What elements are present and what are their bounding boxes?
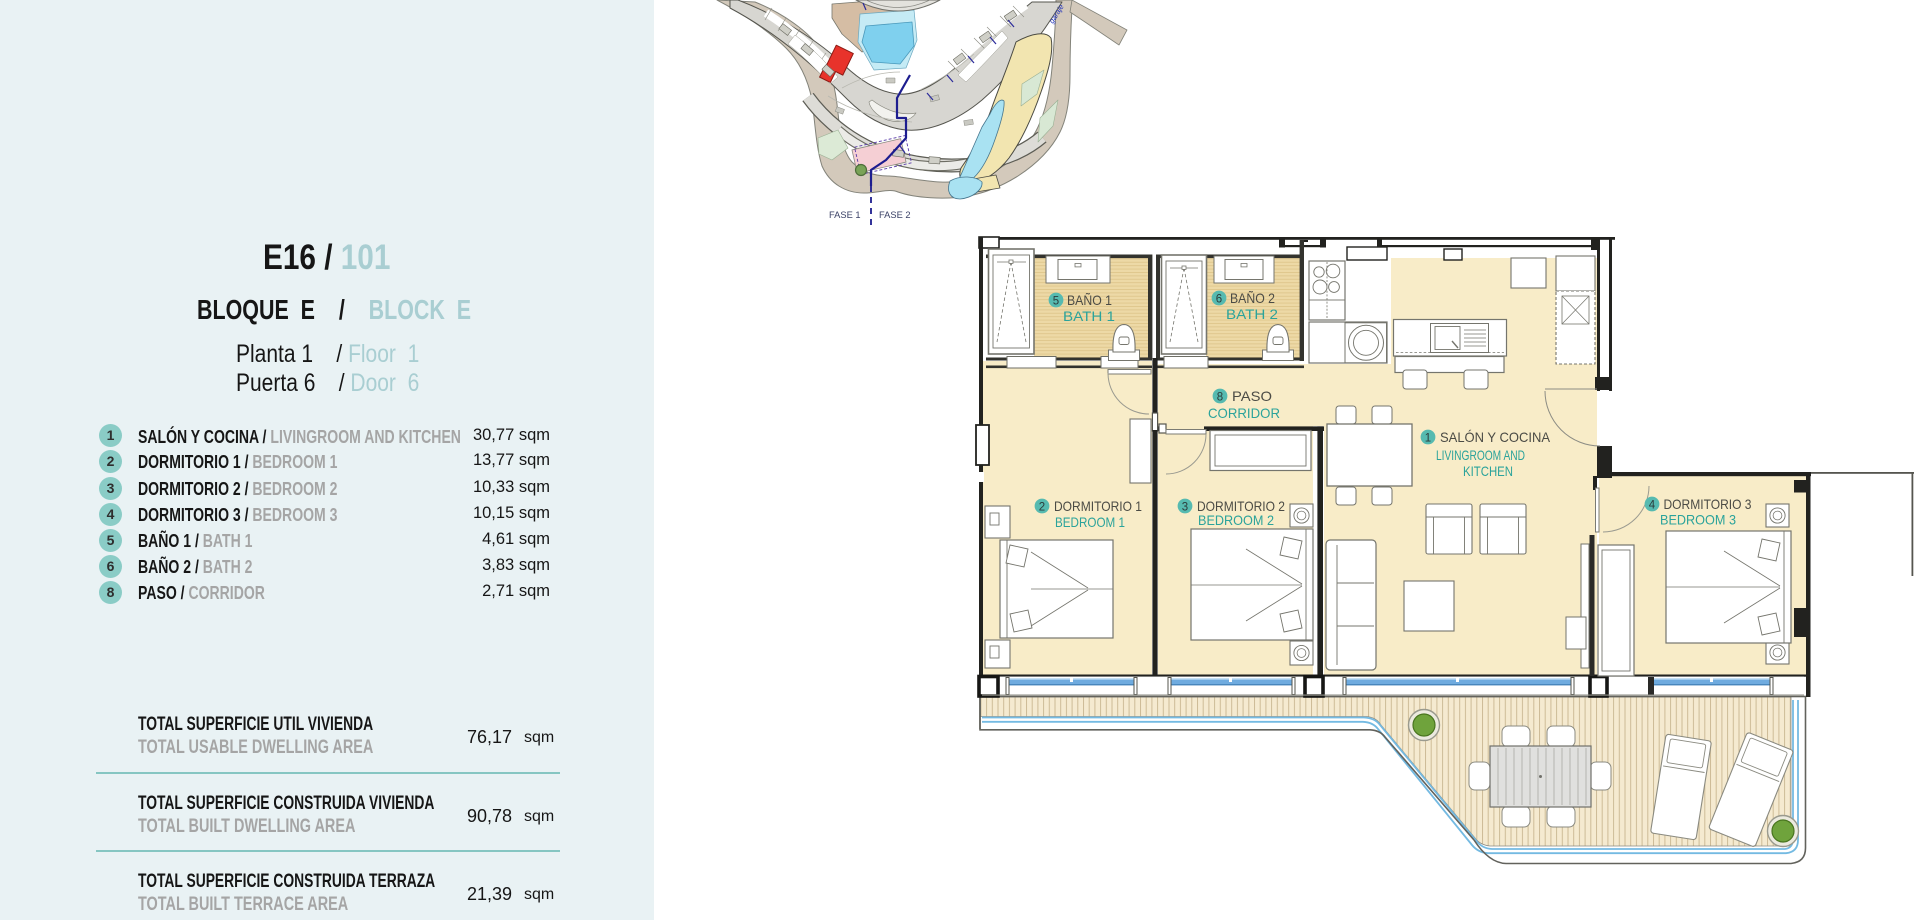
svg-text:SALÓN Y COCINA: SALÓN Y COCINA xyxy=(1440,429,1551,445)
svg-text:PASO: PASO xyxy=(1232,388,1272,404)
svg-text:LIVINGROOM AND: LIVINGROOM AND xyxy=(1436,447,1525,463)
svg-text:DORMITORIO 1: DORMITORIO 1 xyxy=(1054,498,1142,514)
svg-text:FASE 1: FASE 1 xyxy=(829,210,861,220)
svg-text:BATH 2: BATH 2 xyxy=(1226,306,1278,322)
svg-text:BEDROOM 1: BEDROOM 1 xyxy=(1055,514,1125,530)
svg-text:KITCHEN: KITCHEN xyxy=(1463,463,1513,479)
svg-text:DORMITORIO 3: DORMITORIO 3 xyxy=(1664,496,1752,512)
svg-text:8: 8 xyxy=(1217,392,1223,404)
svg-text:6: 6 xyxy=(1216,294,1222,306)
svg-text:BEDROOM 2: BEDROOM 2 xyxy=(1198,512,1274,528)
svg-text:1: 1 xyxy=(1425,433,1431,445)
svg-text:FASE 2: FASE 2 xyxy=(879,210,911,220)
svg-text:CORRIDOR: CORRIDOR xyxy=(1208,405,1280,421)
svg-text:2: 2 xyxy=(1039,502,1045,514)
svg-text:4: 4 xyxy=(1649,500,1656,512)
svg-text:BEDROOM 3: BEDROOM 3 xyxy=(1660,512,1736,528)
svg-text:3: 3 xyxy=(1182,502,1188,514)
svg-text:BAÑO 1: BAÑO 1 xyxy=(1067,292,1112,308)
svg-text:BATH 1: BATH 1 xyxy=(1063,308,1115,324)
svg-text:5: 5 xyxy=(1053,296,1059,308)
svg-text:BAÑO 2: BAÑO 2 xyxy=(1230,290,1275,306)
